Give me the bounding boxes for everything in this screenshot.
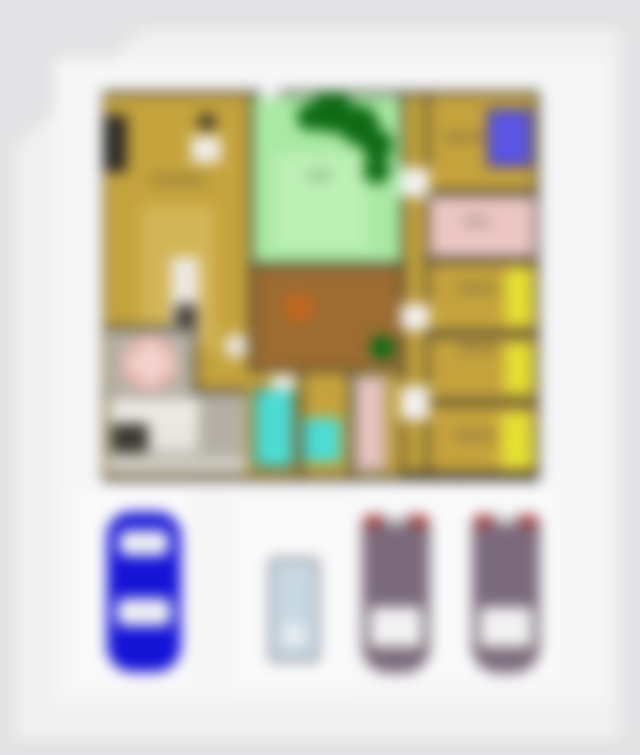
bed-yellow-3[interactable] [501, 413, 533, 469]
bush[interactable] [370, 335, 395, 360]
door-gap [261, 91, 279, 99]
table-detail [126, 359, 174, 366]
fireplace[interactable] [103, 115, 127, 172]
bed-yellow-1[interactable] [505, 269, 533, 325]
taillight [411, 515, 427, 527]
door-gap [401, 304, 429, 330]
door-gap [401, 168, 429, 197]
room-label-bedroom-1: Bedroom [447, 284, 511, 294]
stove[interactable] [112, 424, 148, 452]
clay-patch [284, 292, 314, 322]
taillight [475, 515, 491, 527]
door-gap [225, 335, 247, 357]
van-windshield [480, 607, 532, 647]
tree-canopy-blob [297, 103, 325, 131]
room-label-living: Living Room [133, 175, 223, 185]
trailer[interactable] [268, 557, 320, 663]
shower-2[interactable] [303, 418, 341, 462]
room-label-lawn: Lawn [289, 171, 349, 181]
car-front-window [119, 530, 169, 556]
interior-wall [193, 330, 197, 393]
floor-plan[interactable]: Living Room Lawn Bedroom Room Bedroom Be… [103, 91, 539, 481]
tv[interactable] [199, 115, 215, 129]
car-rear-window [117, 598, 171, 626]
room-label-bedroom-3: Bedroom [445, 431, 509, 441]
screenshot-frame: Living Room Lawn Bedroom Room Bedroom Be… [0, 0, 640, 755]
van-left[interactable] [362, 515, 430, 673]
desk[interactable] [191, 136, 221, 163]
van-right[interactable] [472, 515, 540, 673]
kitchen-counter[interactable] [111, 399, 199, 423]
taillight [521, 515, 537, 527]
blurred-scene: Living Room Lawn Bedroom Room Bedroom Be… [0, 0, 640, 755]
door-gap [401, 386, 429, 420]
taillight [365, 515, 381, 527]
roof-strip [494, 515, 518, 524]
tree-canopy-blob [363, 157, 390, 184]
bathtub[interactable] [357, 379, 383, 468]
trailer-detail [282, 627, 306, 643]
room-label-bedroom-2: Bedroom [447, 344, 511, 354]
room-label-pink: Room [445, 217, 509, 227]
lawn-inner-patch [275, 153, 367, 249]
sink[interactable] [271, 374, 295, 390]
roof-strip [384, 515, 408, 524]
entry-strip [107, 457, 247, 474]
blue-car[interactable] [107, 512, 181, 672]
kitchen-island[interactable] [148, 423, 198, 451]
shower[interactable] [253, 388, 295, 468]
room-label-bedroom-top: Bedroom [435, 133, 495, 143]
van-windshield [370, 607, 422, 647]
